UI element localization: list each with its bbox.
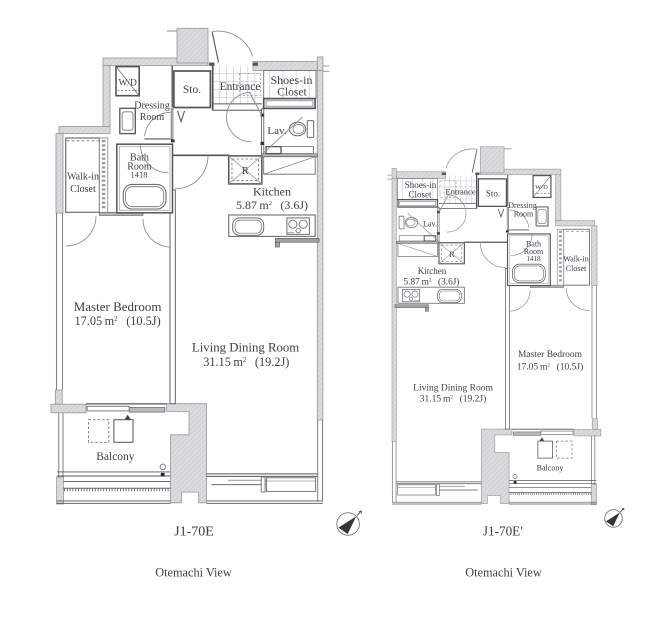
svg-text:Closet: Closet xyxy=(408,190,432,200)
svg-text:Shoes-in: Shoes-in xyxy=(405,180,437,190)
svg-text:5.87 m2 (3.6J): 5.87 m2 (3.6J) xyxy=(404,277,460,288)
svg-text:Living Dining Room: Living Dining Room xyxy=(413,384,493,394)
svg-text:1418: 1418 xyxy=(527,255,542,263)
svg-text:W/D: W/D xyxy=(535,184,548,191)
svg-text:Walk-in: Walk-in xyxy=(67,172,99,183)
svg-text:Balcony: Balcony xyxy=(537,464,564,473)
svg-text:Kitchen: Kitchen xyxy=(418,266,447,276)
svg-text:J1-70E′: J1-70E′ xyxy=(483,524,523,539)
svg-text:Closet: Closet xyxy=(277,87,307,99)
svg-text:J1-70E: J1-70E xyxy=(174,525,214,540)
svg-text:Lav.: Lav. xyxy=(267,125,286,137)
svg-text:Master Bedroom: Master Bedroom xyxy=(518,350,583,360)
svg-text:Balcony: Balcony xyxy=(96,451,135,463)
svg-text:Closet: Closet xyxy=(70,184,96,195)
svg-text:Room: Room xyxy=(514,210,534,219)
svg-text:Kitchen: Kitchen xyxy=(253,185,291,199)
svg-text:5.87 m2 (3.6J): 5.87 m2 (3.6J) xyxy=(236,198,308,212)
svg-text:1418: 1418 xyxy=(131,170,148,180)
svg-text:Closet: Closet xyxy=(566,264,587,273)
svg-text:R: R xyxy=(242,166,249,177)
svg-text:Entrance: Entrance xyxy=(220,81,261,93)
svg-text:Lav.: Lav. xyxy=(423,220,437,229)
svg-text:R: R xyxy=(449,250,455,259)
svg-text:Otemachi View: Otemachi View xyxy=(465,566,542,580)
svg-text:Sto.: Sto. xyxy=(183,84,201,96)
svg-text:31.15 m2 (19.2J): 31.15 m2 (19.2J) xyxy=(203,355,289,369)
svg-text:Dressing: Dressing xyxy=(134,101,170,112)
svg-text:Room: Room xyxy=(140,112,165,123)
svg-text:Otemachi View: Otemachi View xyxy=(155,566,232,580)
svg-text:31.15 m2 (19.2J): 31.15 m2 (19.2J) xyxy=(420,394,487,405)
svg-text:Sto.: Sto. xyxy=(486,189,500,199)
svg-text:17.05 m2 (10.5J): 17.05 m2 (10.5J) xyxy=(517,362,584,373)
svg-text:Shoes-in: Shoes-in xyxy=(271,73,313,87)
svg-text:W/D: W/D xyxy=(118,79,137,89)
svg-text:Living Dining Room: Living Dining Room xyxy=(192,341,299,355)
svg-text:17.05 m2 (10.5J): 17.05 m2 (10.5J) xyxy=(74,314,160,328)
svg-text:Entrance: Entrance xyxy=(445,187,475,197)
svg-text:Master Bedroom: Master Bedroom xyxy=(74,299,162,314)
svg-text:Walk-in: Walk-in xyxy=(563,255,589,264)
